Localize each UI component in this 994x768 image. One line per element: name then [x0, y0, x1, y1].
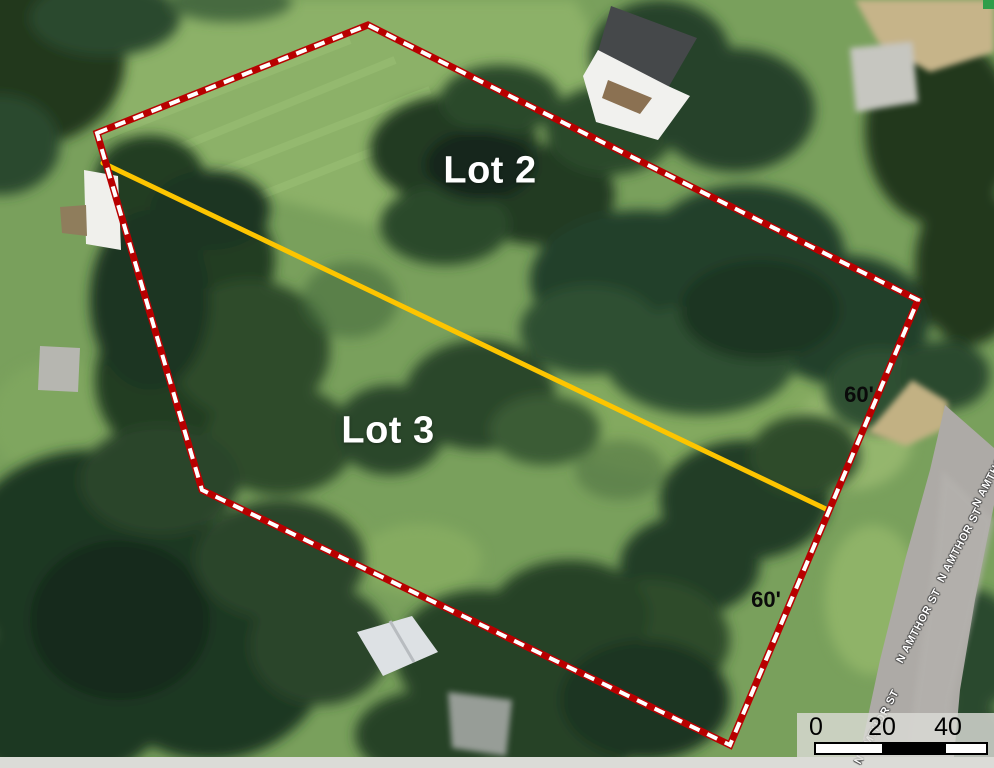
frontage-60ft-label-lower: 60': [751, 587, 781, 613]
building-bottom: [448, 692, 512, 756]
lot-2-label: Lot 2: [443, 150, 536, 193]
house-left-deck: [60, 205, 87, 236]
scale-bar: 0 20 40: [797, 713, 994, 760]
house-left: [84, 170, 121, 250]
lot-3-label: Lot 3: [341, 410, 434, 453]
scale-tick-40: 40: [934, 714, 962, 740]
frontage-60ft-label-upper: 60': [844, 382, 874, 408]
aerial-lot-map: Lot 2 Lot 3 60' 60' N AMTHOR ST N AMTHOR…: [0, 0, 994, 768]
scale-tick-0: 0: [809, 714, 823, 740]
scale-bar-black-segment: [882, 744, 946, 753]
corner-artifact: [983, 0, 994, 9]
shed-left: [38, 346, 80, 392]
scale-bar-rule: [814, 742, 988, 755]
scale-tick-20: 20: [868, 714, 896, 740]
